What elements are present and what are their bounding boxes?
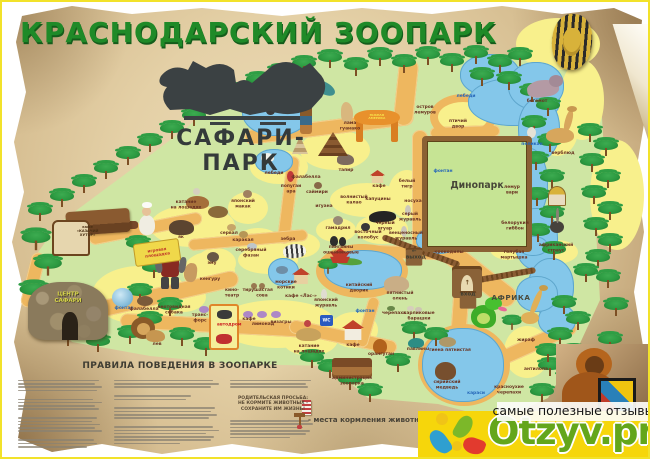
map-label: фонтан bbox=[433, 169, 452, 174]
map-label: катание на лошадях bbox=[171, 200, 202, 210]
map-label: кафе bbox=[372, 184, 385, 189]
map-label: лемур вари bbox=[504, 185, 520, 195]
map-label: антилопа bbox=[524, 367, 548, 372]
rules-column bbox=[114, 378, 224, 446]
map-label: енотовидная собака bbox=[157, 305, 190, 315]
safari-park-logo-icon bbox=[150, 56, 334, 132]
map-label: пятнистый олень bbox=[387, 291, 414, 301]
map-label: кенгуру bbox=[200, 277, 220, 282]
map-label: остров лемуров bbox=[414, 105, 436, 115]
map-label: павлины bbox=[407, 347, 429, 352]
map-label: лама гуанако bbox=[340, 121, 360, 131]
map-label: лев bbox=[152, 342, 161, 347]
map-label: кафе «Лас-» bbox=[285, 294, 317, 299]
map-label: саймири bbox=[306, 190, 328, 195]
map-label: АФРИКА bbox=[491, 294, 530, 302]
brand-tagline: самые полезные отзывы bbox=[497, 402, 650, 421]
map-label: морские котики bbox=[275, 280, 297, 290]
map-label: птичий двор bbox=[449, 119, 467, 129]
map-label: администрация зоопарка bbox=[332, 376, 372, 386]
map-label: восточный колобус bbox=[354, 230, 381, 240]
map-label: японский макак bbox=[231, 199, 255, 209]
rules-column bbox=[18, 378, 106, 449]
map-label: гамадрил bbox=[326, 226, 351, 231]
map-label: транс- форс bbox=[192, 313, 208, 323]
map-label: вход bbox=[460, 291, 477, 309]
map-label: Динопарк bbox=[450, 180, 503, 190]
map-label: зебра bbox=[281, 237, 296, 242]
map-label: пеликан bbox=[521, 142, 542, 147]
map-label: крокодилы bbox=[434, 250, 463, 255]
safari-park-wordmark: САФАРИ-ПАРК bbox=[146, 126, 336, 176]
map-label: китайский дворик bbox=[346, 283, 373, 293]
map-label: волнистый калао bbox=[340, 195, 368, 205]
map-label: голубая мартышка bbox=[501, 250, 528, 260]
map-label: венценосный журавль bbox=[389, 231, 423, 241]
map-label: орангутан bbox=[368, 352, 394, 357]
rules-column: РОДИТЕЛЬСКАЯ ПРОСЬБА: НЕ КОРМИТЕ ЖИВОТНЫ… bbox=[230, 378, 316, 440]
map-label: ← выход bbox=[406, 248, 423, 266]
map-label: кафе bbox=[346, 343, 359, 348]
map-label: серый журавль bbox=[399, 212, 421, 222]
feeder-icon bbox=[294, 413, 305, 429]
map-label: африканский страус bbox=[539, 243, 573, 253]
map-label: лебеди bbox=[457, 94, 476, 99]
map-label: белорукий гиббон bbox=[501, 221, 529, 231]
map-label: японский журавль bbox=[314, 298, 338, 308]
zoo-map-poster: КРАСНОДАРСКИЙ ЗООПАРК САФАРИ-ПАРК ЮЖНАЯ … bbox=[0, 0, 650, 459]
map-label: фонтан bbox=[355, 309, 374, 314]
map-label: караси bbox=[467, 391, 485, 396]
map-label: белый тигр bbox=[399, 179, 415, 189]
map-label: тир bbox=[243, 288, 252, 293]
map-label: карликовые барашки bbox=[403, 311, 434, 321]
map-label: тапир bbox=[339, 168, 354, 173]
map-label: игуана bbox=[315, 204, 332, 209]
feeding-legend-label: - места кормления животных bbox=[308, 416, 428, 423]
parent-note: РОДИТЕЛЬСКАЯ ПРОСЬБА: НЕ КОРМИТЕ ЖИВОТНЫ… bbox=[230, 396, 316, 413]
rules-heading: ПРАВИЛА ПОВЕДЕНИЯ В ЗООПАРКЕ bbox=[40, 362, 320, 371]
otzyv-logo-icon bbox=[422, 411, 486, 459]
map-label: каракал bbox=[232, 238, 253, 243]
map-label: капуцины bbox=[365, 197, 390, 202]
map-label: кино- театр bbox=[225, 288, 239, 298]
map-label: красноухие черепахи bbox=[494, 385, 524, 395]
map-label: як bbox=[178, 235, 184, 240]
map-label: гиена пятнистая bbox=[429, 348, 471, 353]
map-label: бегемот bbox=[527, 99, 548, 104]
map-label: носуха bbox=[404, 199, 421, 204]
map-label: верблюд bbox=[551, 151, 574, 156]
map-label: сирийский медведь bbox=[434, 380, 461, 390]
map-label: фалабелла bbox=[129, 307, 158, 312]
map-label: ушастая сова bbox=[251, 288, 273, 298]
poster-title: КРАСНОДАРСКИЙ ЗООПАРК bbox=[20, 16, 440, 49]
map-label: попугаи ара bbox=[281, 184, 301, 194]
map-label: пингвины ошейниковые bbox=[323, 245, 359, 255]
map-label: катание на лошадях bbox=[294, 344, 325, 354]
map-label: жираф bbox=[517, 338, 535, 343]
map-label: сервал bbox=[220, 231, 238, 236]
map-label: эму bbox=[207, 261, 216, 266]
map-label: визагры bbox=[271, 320, 292, 325]
map-label: серебряный фазан bbox=[235, 248, 266, 258]
